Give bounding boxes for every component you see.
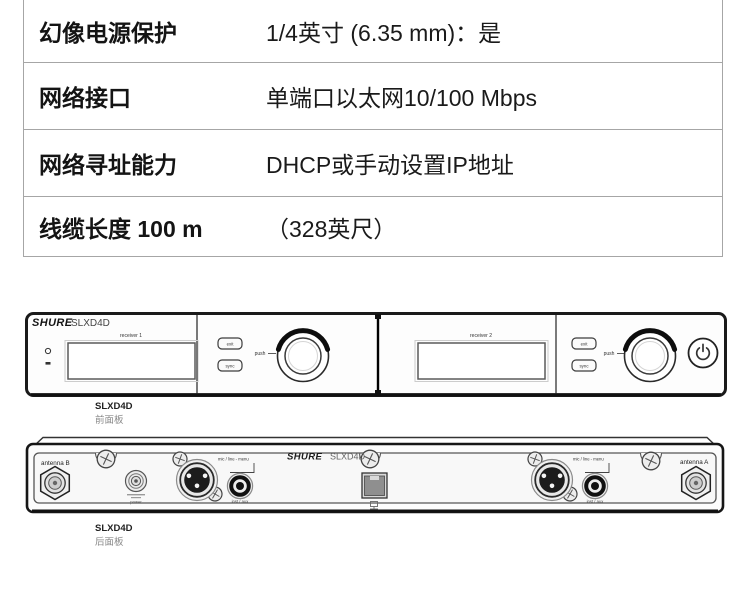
shure-logo: SHURE (32, 317, 73, 329)
power-jack-label: power (130, 500, 142, 505)
receiver-1-label: receiver 1 (120, 333, 142, 339)
table-row: 线缆长度 100 m （328英尺） (24, 197, 722, 257)
aux-jack-label: inst / aux (232, 499, 250, 504)
power-button (689, 339, 718, 368)
antenna-b-connector (41, 467, 70, 500)
sync-button-label: sync (579, 364, 589, 369)
control-knob (625, 331, 676, 382)
antenna-a-connector (682, 467, 711, 500)
product-spec-page: 幻像电源保护 1/4英寸 (6.35 mm)：是 网络接口 单端口以太网10/1… (0, 0, 750, 608)
spec-value: DHCP或手动设置IP地址 (266, 146, 722, 180)
xlr-output-b (177, 460, 218, 501)
table-row: 网络接口 单端口以太网10/100 Mbps (24, 63, 722, 130)
caption-text: 后面板 (95, 536, 132, 549)
aux-jack-label: inst / aux (587, 499, 605, 504)
exit-button-label: exit (227, 342, 235, 347)
sync-button-label: sync (225, 364, 235, 369)
rear-panel-caption: SLXD4D 后面板 (95, 522, 132, 549)
front-panel-caption: SLXD4D 前面板 (95, 400, 132, 427)
caption-model: SLXD4D (95, 522, 132, 535)
shure-logo: SHURE (287, 452, 323, 463)
audio-led-icon (46, 362, 51, 365)
control-knob (278, 331, 329, 382)
power-spec-fineprint (131, 497, 141, 498)
spec-value: 单端口以太网10/100 Mbps (266, 79, 722, 113)
quarter-inch-jack-a (582, 473, 607, 498)
ethernet-port (362, 473, 387, 498)
push-label: push (604, 351, 615, 357)
receiver-2-label: receiver 2 (470, 333, 492, 339)
spec-label: 网络寻址能力 (24, 146, 266, 180)
table-row: 网络寻址能力 DHCP或手动设置IP地址 (24, 130, 722, 197)
spec-table: 幻像电源保护 1/4英寸 (6.35 mm)：是 网络接口 单端口以太网10/1… (23, 0, 723, 257)
front-panel-figure: SHURE SLXD4D receiver 1 exit sync push r… (25, 312, 727, 398)
mic-line-label: mic / line - menu (218, 457, 249, 462)
model-label: SLXD4D (71, 318, 110, 329)
table-row: 幻像电源保护 1/4英寸 (6.35 mm)：是 (24, 0, 722, 63)
caption-model: SLXD4D (95, 400, 132, 413)
power-spec-fineprint (127, 494, 145, 495)
model-label: SLXD4D (330, 452, 366, 462)
spec-value: （328英尺） (266, 210, 722, 244)
receiver-2-display (418, 343, 545, 379)
rear-panel-figure: antenna B (24, 434, 726, 522)
mic-line-label: mic / line - menu (573, 457, 604, 462)
divider-notch (375, 314, 381, 319)
caption-text: 前面板 (95, 414, 132, 427)
xlr-output-a (532, 460, 573, 501)
exit-button-label: exit (581, 342, 589, 347)
receiver-1-display (68, 343, 195, 379)
push-label: push (255, 351, 266, 357)
divider-notch (375, 390, 381, 395)
antenna-a-label: antenna A (680, 459, 709, 466)
spec-label: 网络接口 (24, 79, 266, 113)
spec-value: 1/4英寸 (6.35 mm)：是 (266, 14, 722, 48)
quarter-inch-jack-b (227, 473, 252, 498)
spec-label: 幻像电源保护 (24, 14, 266, 48)
power-jack (126, 471, 147, 492)
spec-label: 线缆长度 100 m (24, 210, 266, 244)
